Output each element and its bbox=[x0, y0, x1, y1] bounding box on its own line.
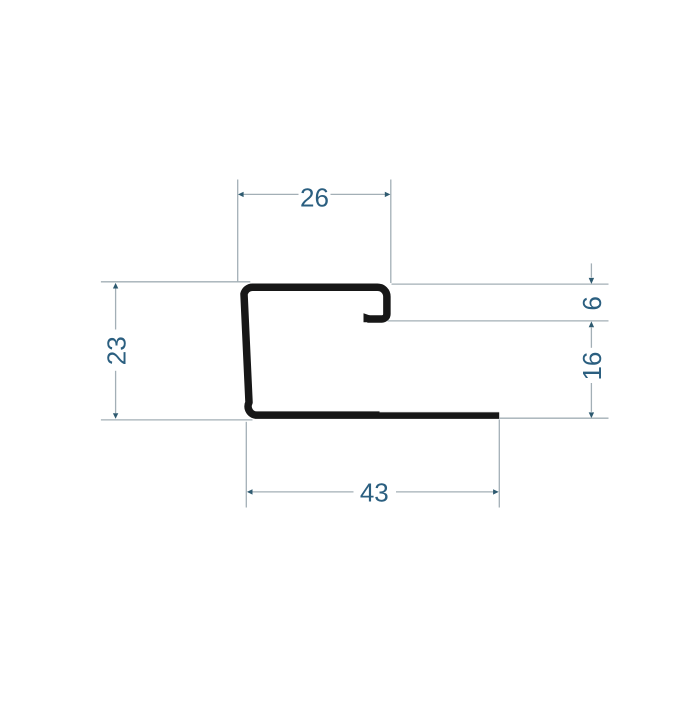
svg-text:43: 43 bbox=[360, 478, 389, 508]
svg-text:6: 6 bbox=[577, 296, 607, 310]
svg-text:23: 23 bbox=[101, 336, 131, 365]
svg-text:26: 26 bbox=[300, 182, 329, 212]
svg-text:16: 16 bbox=[577, 352, 607, 381]
